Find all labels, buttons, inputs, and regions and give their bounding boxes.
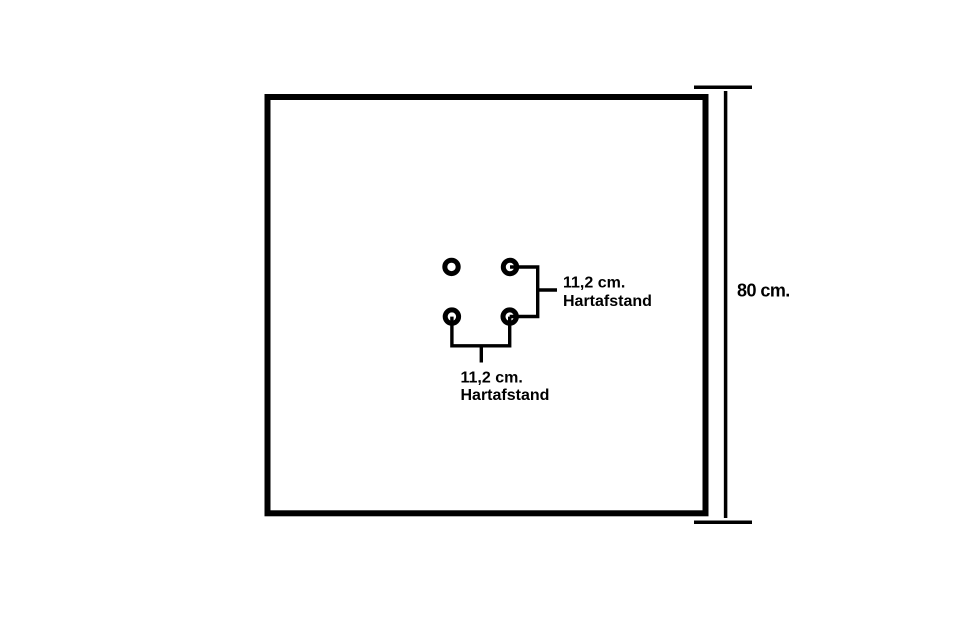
svg-text:Hartafstand: Hartafstand — [563, 293, 652, 310]
svg-text:Hartafstand: Hartafstand — [461, 387, 550, 404]
svg-text:11,2 cm.: 11,2 cm. — [461, 370, 523, 387]
svg-text:80 cm.: 80 cm. — [737, 281, 790, 301]
svg-text:11,2 cm.: 11,2 cm. — [563, 275, 625, 292]
